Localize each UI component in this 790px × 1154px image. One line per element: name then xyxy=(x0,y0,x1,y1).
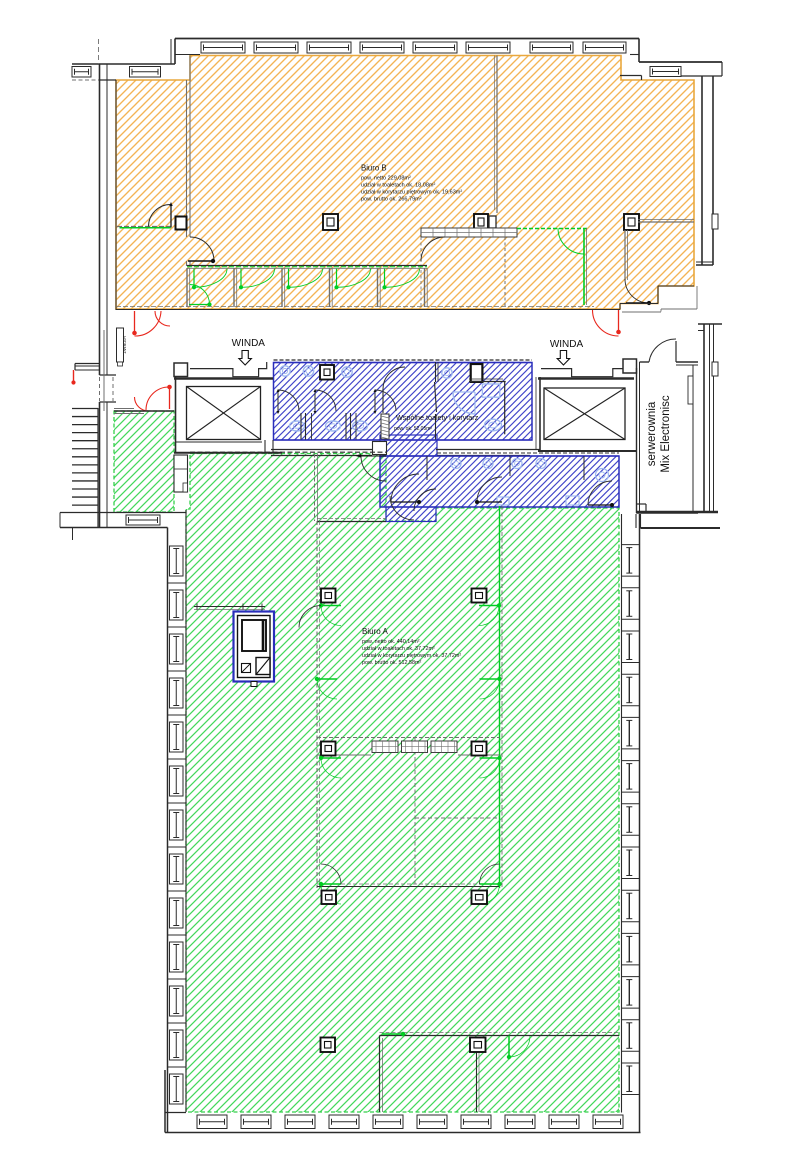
svg-text:udział w toaletach ok. 18,08m²: udział w toaletach ok. 18,08m² xyxy=(361,183,435,189)
svg-text:udział w toaletach ok. 37,72m²: udział w toaletach ok. 37,72m² xyxy=(362,646,435,652)
svg-text:pow. netto 229,08m²: pow. netto 229,08m² xyxy=(361,176,411,182)
svg-text:pow. ok. 52,05m²: pow. ok. 52,05m² xyxy=(394,426,432,432)
svg-text:Biuro A: Biuro A xyxy=(362,627,388,636)
svg-text:serwerownia: serwerownia xyxy=(646,401,658,466)
svg-text:Wspólne toalety i korytarz: Wspólne toalety i korytarz xyxy=(396,413,479,422)
svg-text:Mix Electronisc: Mix Electronisc xyxy=(660,395,672,473)
svg-text:WINDA: WINDA xyxy=(232,338,266,349)
svg-text:pow. brutto ok. 266,79m²: pow. brutto ok. 266,79m² xyxy=(361,197,422,203)
svg-text:pow. netto ok. 440,14m²: pow. netto ok. 440,14m² xyxy=(362,639,420,645)
svg-text:pow. brutto ok. 512,58m²: pow. brutto ok. 512,58m² xyxy=(362,660,422,666)
svg-text:Biuro B: Biuro B xyxy=(361,164,387,173)
svg-text:WINDA: WINDA xyxy=(550,339,584,350)
svg-text:udział w korytarzu piętrowym o: udział w korytarzu piętrowym ok. 37,72m² xyxy=(362,653,461,659)
svg-text:HYDRANT: HYDRANT xyxy=(123,336,127,354)
svg-text:udział w korytarzu piętrowym o: udział w korytarzu piętrowym ok. 19,63m² xyxy=(361,190,462,196)
